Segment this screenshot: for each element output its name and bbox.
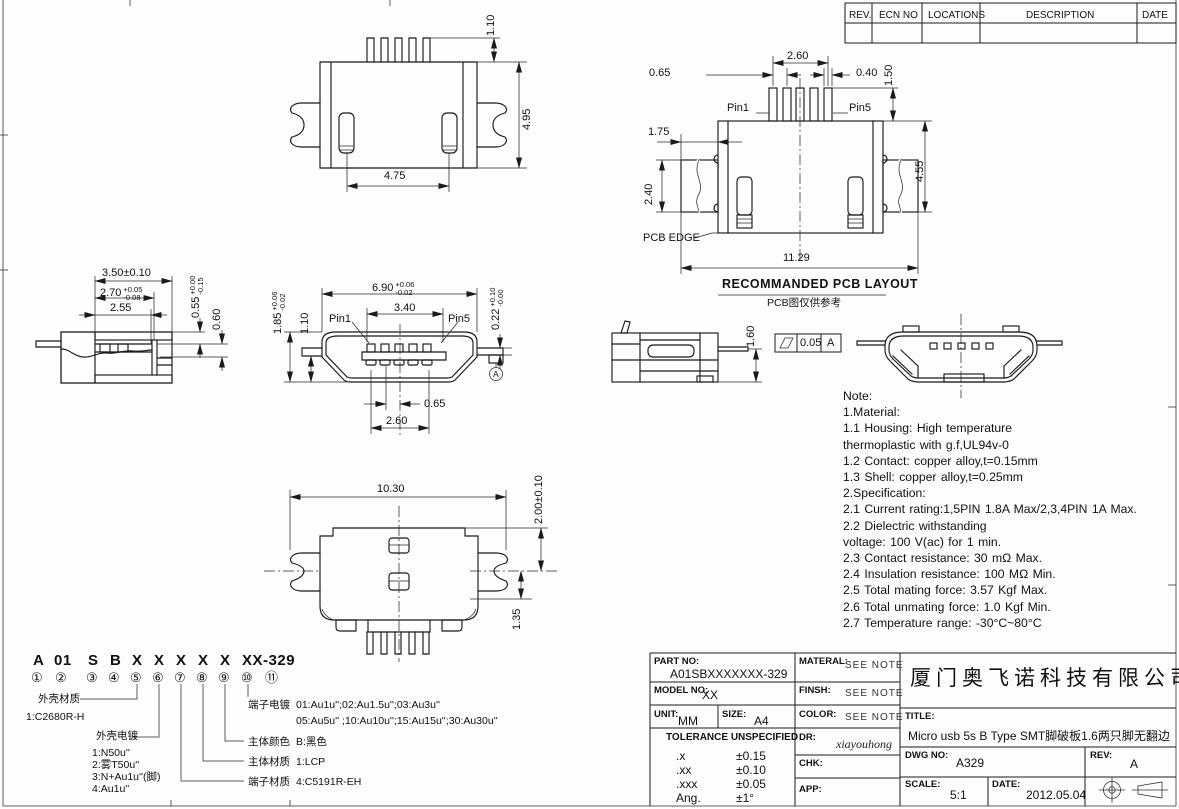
dim-pad-height: 1.50 [884,65,895,86]
dim-section-width: 3.50±0.10 [102,268,151,279]
dim-contact-height: 0.60 [212,309,223,330]
chk-label: CHK: [799,759,823,769]
dim-value: 6.90 [372,283,393,294]
code-digit: ⑨ [218,671,230,684]
dim-front-height: 1.85+0.06-0.02 [271,292,286,334]
scale-value: 5:1 [950,789,967,801]
tolerance: +0.10-0.00 [489,288,504,307]
code-seg: X [220,653,231,668]
dwg-no-value: A329 [956,757,984,769]
dim-pcb-depth: 4.55 [915,161,926,182]
dim-value: 0.55 [191,297,202,318]
scale-label: SCALE: [905,780,940,790]
top-view [291,38,527,192]
tol-row-label: .x [676,750,685,762]
code-seg: X [198,653,209,668]
note-line: voltage: 100 V(ac) for 1 min. [843,534,1137,550]
code-digit: ⑥ [152,671,164,684]
dwg-no-label: DWG NO: [905,751,948,761]
description-header: DESCRIPTION [1026,11,1094,21]
dim-pad-span: 2.60 [787,51,808,62]
dim-side-height: 1.60 [746,326,757,347]
dim-side-pad-offset: 1.75 [648,127,669,138]
dim-front-width: 6.90+0.06-0.02 [372,281,414,296]
tolerance: +0.06-0.02 [271,292,286,311]
tol-row-value: ±0.15 [736,750,766,762]
tol-dn: -0.02 [279,292,287,311]
material-value: SEE NOTE [845,661,904,671]
shell-plating-option: 1:N50u'' [92,748,130,759]
dim-leg-offset: 1.10 [300,313,311,334]
locations-header: LOCATIONS [928,11,985,21]
shell-material-label: 外壳材质 [38,694,80,705]
dim-pitch-span: 2.60 [386,416,407,427]
tol-row-value: ±0.05 [736,778,766,790]
dim-slot-span: 4.75 [384,171,405,182]
dim-value: 2.70 [100,288,121,299]
part-no-value: A01SBXXXXXXX-329 [670,668,787,680]
tolerance: +0.05-0.08 [123,286,142,301]
dim-pad-pitch: 0.65 [649,68,670,79]
code-digit: ⑧ [196,671,208,684]
shell-plating-label: 外壳电镀 [96,731,138,742]
note-line: 2.6 Total unmating force: 1.0 Kgf Min. [843,599,1137,615]
size-label: SIZE: [722,710,746,720]
dim-pin-protrusion: 1.10 [486,15,497,36]
code-seg: 01 [54,653,72,668]
model-no-value: XX [702,689,718,701]
dim-pad-width: 0.40 [856,68,877,79]
notes-block: Note: 1.Material: 1.1 Housing: High temp… [843,388,1137,631]
tol-row-value: ±1° [736,792,754,804]
note-line: 2.Specification: [843,485,1137,501]
pcb-pin1-label: Pin1 [727,103,749,114]
dr-value: xiayouhong [836,738,892,750]
note-line: 2.3 Contact resistance: 30 mΩ Max. [843,550,1137,566]
material-label: MATERAL: [799,657,848,667]
unit-label: UNIT: [654,710,678,720]
tol-row-label: .xxx [676,778,697,790]
code-seg: XX-329 [242,653,295,668]
revision-table-grid [845,3,1176,43]
dim-section-cavity: 2.55 [110,303,131,314]
tol-row-label: .xx [676,764,691,776]
note-line: 2.2 Dielectric withstanding [843,518,1137,534]
code-digit: ⑩ [241,671,253,684]
flatness-datum: A [827,338,834,349]
dim-leg-step: 0.22+0.10-0.00 [489,288,504,330]
shell-plating-option: 3:N+Au1u''(脚) [92,772,161,783]
code-seg: A [33,653,44,668]
size-value: A4 [754,715,769,727]
dim-value: 0.22 [491,309,502,330]
tolerance: +0.06-0.02 [395,281,414,296]
date-label: DATE: [992,780,1020,790]
note-line: 1.1 Housing: High temperature [843,420,1137,436]
model-no-label: MODEL NO: [654,686,708,696]
tolerance-title: TOLERANCE UNSPECIFIED [666,733,798,743]
color-label: COLOR: [799,710,836,720]
projection-symbol [1099,777,1168,803]
note-line: 1.Material: [843,404,1137,420]
date-value: 2012.05.04 [1026,789,1086,801]
pcb-layout-caption-cn: PCB图仅供参考 [767,298,841,309]
dim-bottom-depth-a: 2.00±0.10 [534,475,545,524]
dim-bottom-depth-b: 1.35 [512,609,523,630]
finish-value: SEE NOTE [845,689,904,699]
code-digit: ⑪ [265,671,278,684]
flatness-value: 0.05 [800,338,821,349]
pcb-pin5-label: Pin5 [849,103,871,114]
code-digit: ④ [108,671,120,684]
color-value: SEE NOTE [845,713,904,723]
datum-a-label: A [493,370,499,379]
dim-section-inner-width: 2.70+0.05-0.08 [100,286,142,301]
body-material-value: 1:LCP [296,757,325,768]
date-header: DATE [1142,11,1168,21]
note-line: thermoplastic with g.f,UL94v-0 [843,437,1137,453]
tol-row-value: ±0.10 [736,764,766,776]
note-line: Note: [843,388,1137,404]
side-view [612,321,841,382]
code-seg: X [154,653,165,668]
terminal-plating-label: 端子电镀 [248,700,290,711]
body-color-label: 主体颜色 [248,737,290,748]
dim-side-pad-height: 2.40 [644,184,655,205]
terminal-plating-options: 01:Au1u'';02:Au1.5u'';03:Au3u'' [296,700,440,711]
note-line: 2.4 Insulation resistance: 100 MΩ Min. [843,566,1137,582]
pcb-layout-caption: RECOMMANDED PCB LAYOUT [722,278,918,291]
engineering-drawing-sheet: REV. ECN NO LOCATIONS DESCRIPTION DATE 1… [0,0,1179,809]
terminal-plating-options: 05:Au5u'' ;10:Au10u'';15:Au15u'';30:Au30… [296,716,498,727]
drawing-title: Micro usb 5s B Type SMT脚破板1.6两只脚无翻边 [908,730,1170,742]
code-seg: X [176,653,187,668]
pin1-label: Pin1 [329,314,351,325]
code-digit: ③ [86,671,98,684]
rev-header: REV. [849,11,871,21]
note-line: 1.3 Shell: copper alloy,t=0.25mm [843,469,1137,485]
unit-value: MM [678,715,698,727]
note-line: 2.7 Temperature range: -30°C~80°C [843,615,1137,631]
tol-dn: -0.02 [395,289,414,297]
dr-label: DR: [799,733,816,743]
code-digit: ② [55,671,67,684]
dim-value: 1.85 [273,313,284,334]
app-label: APP: [799,785,822,795]
company-name: 厦门奥飞诺科技有限公司 [910,668,1179,689]
code-seg: S [88,653,99,668]
tol-dn: -0.15 [197,276,205,295]
dim-contact-offset: 0.55+0.00-0.15 [189,276,204,318]
tol-dn: -0.00 [497,288,505,307]
shell-material-value: 1:C2680R-H [26,712,84,723]
rear-outline-view [857,314,1062,398]
pin5-label: Pin5 [448,314,470,325]
body-color-value: B:黑色 [296,737,327,748]
rev-label: REV: [1090,751,1112,761]
note-line: 2.1 Current rating:1,5PIN 1.8A Max/2,3,4… [843,501,1137,517]
note-line: 2.5 Total mating force: 3.57 Kgf Max. [843,582,1137,598]
tol-dn: -0.08 [123,294,142,302]
dim-pitch: 0.65 [424,399,445,410]
pcb-edge-label: PCB EDGE [643,233,700,244]
shell-plating-option: 2:雾T50u'' [92,760,139,771]
code-seg: B [110,653,121,668]
tolerance: +0.00-0.15 [189,276,204,295]
code-digit: ⑦ [174,671,186,684]
rev-value: A [1130,758,1138,770]
terminal-material-value: 4:C5191R-EH [296,777,361,788]
title-label: TITLE: [905,712,935,722]
body-material-label: 主体材质 [248,757,290,768]
shell-plating-option: 4:Au1u'' [92,784,129,795]
ecn-header: ECN NO [879,11,918,21]
part-no-label: PART NO: [654,657,699,667]
bottom-view [264,490,560,662]
dim-depth: 4.95 [522,109,533,130]
dim-total-width: 11.29 [783,253,810,264]
code-digit: ⑤ [130,671,142,684]
dim-bottom-width: 10.30 [377,484,405,495]
tol-row-label: Ang. [676,792,701,804]
terminal-material-label: 端子材质 [248,777,290,788]
note-line: 1.2 Contact: copper alloy,t=0.15mm [843,453,1137,469]
code-seg: X [132,653,143,668]
finish-label: FINSH: [799,686,831,696]
dim-contact-span: 3.40 [394,303,415,314]
code-digit: ① [31,671,43,684]
